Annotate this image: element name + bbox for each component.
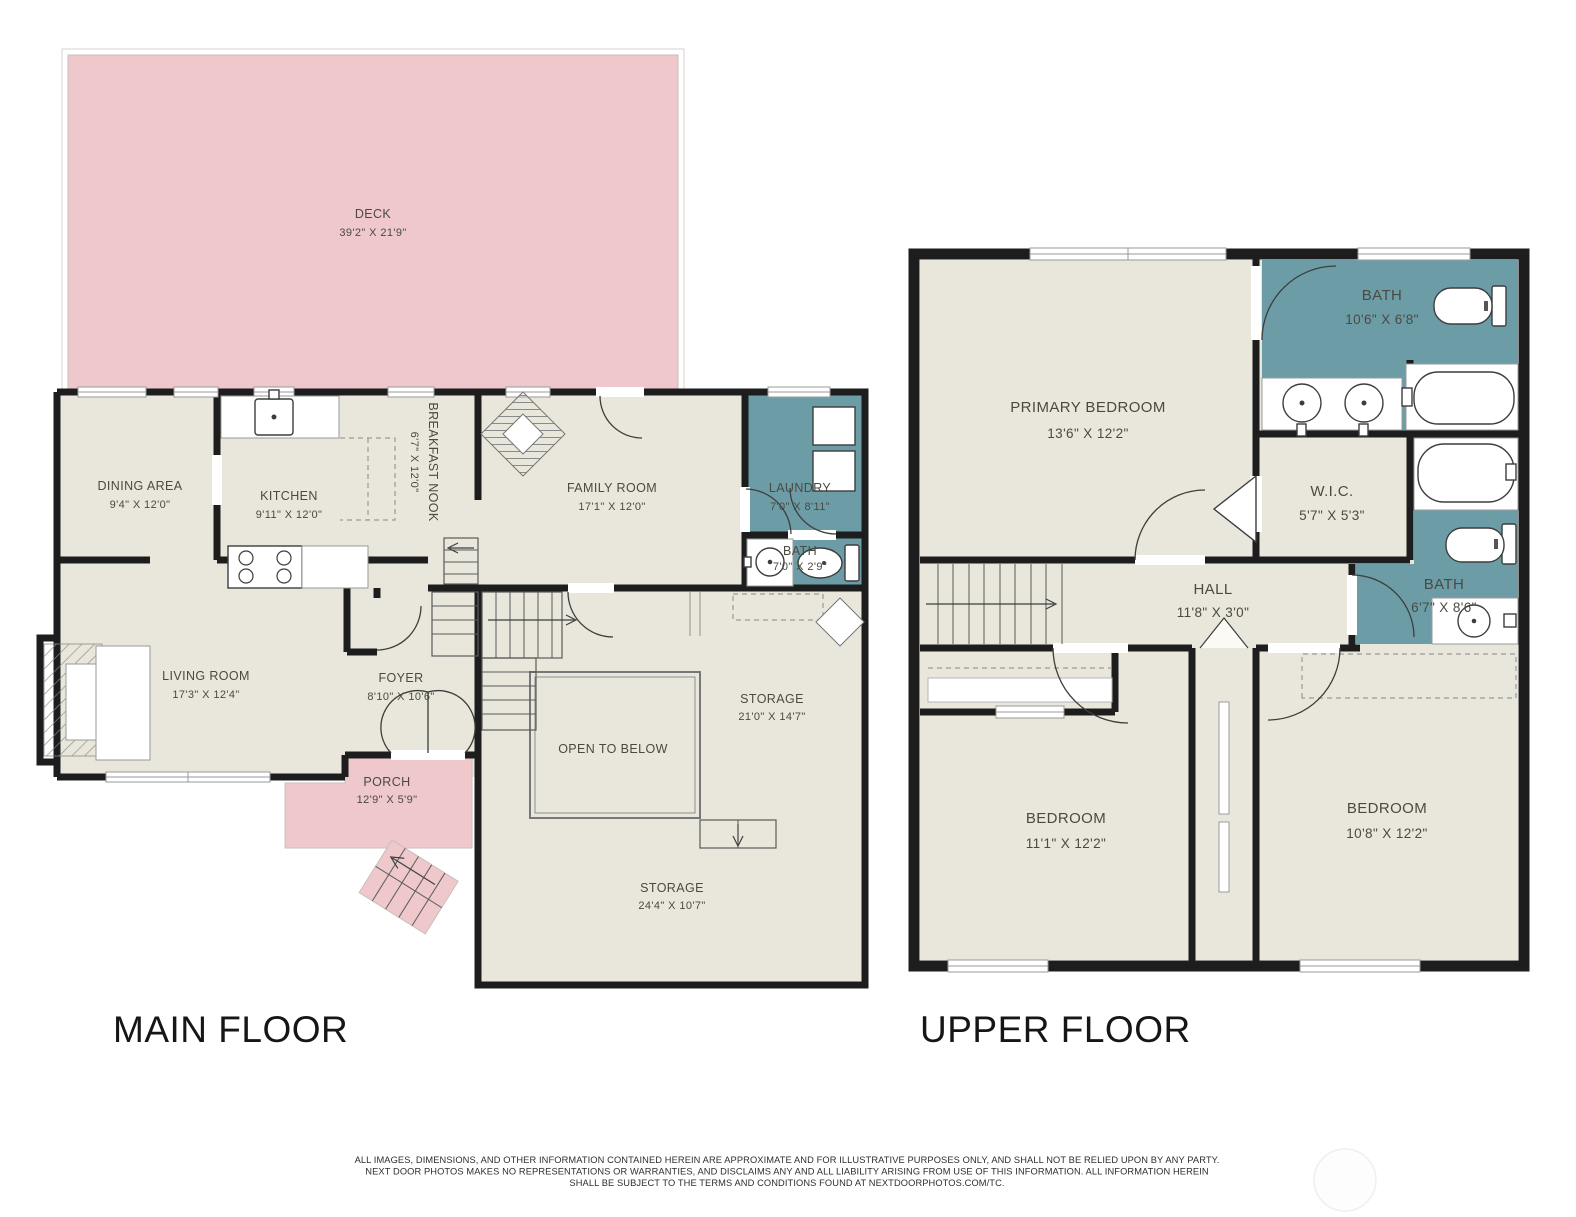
room-label-dining: DINING AREA bbox=[98, 479, 183, 493]
room-dims-deck: 39'2" X 21'9" bbox=[339, 227, 406, 239]
room-dims-wic: 5'7" X 5'3" bbox=[1299, 508, 1365, 523]
room-label-bath-right: BATH bbox=[1424, 576, 1465, 593]
chase-slot bbox=[1219, 702, 1229, 814]
floor-plan-page: DECK 39'2" X 21'9" DINING AREA 9'4" X 12… bbox=[0, 0, 1576, 1217]
cooktop-icon bbox=[228, 546, 368, 588]
chase-slot-2 bbox=[1219, 822, 1229, 892]
room-label-primary: PRIMARY BEDROOM bbox=[1010, 399, 1165, 416]
room-dims-bath-right: 6'7" X 8'6" bbox=[1411, 600, 1477, 615]
room-dims-nook: 6'7" X 12'0" bbox=[408, 432, 420, 493]
room-dims-hall: 11'8" X 3'0" bbox=[1177, 605, 1250, 620]
room-dims-storage2: 24'4" X 10'7" bbox=[638, 900, 705, 912]
room-dims-primary: 13'6" X 12'2" bbox=[1047, 426, 1129, 441]
room-dims-foyer: 8'10" X 10'6" bbox=[367, 691, 434, 703]
disclaimer-line-1: ALL IMAGES, DIMENSIONS, AND OTHER INFORM… bbox=[355, 1155, 1220, 1165]
room-label-living: LIVING ROOM bbox=[162, 669, 250, 683]
room-label-bed-left: BEDROOM bbox=[1026, 810, 1106, 827]
toilet-tank-icon bbox=[1492, 286, 1506, 326]
room-dims-laundry: 7'0" X 8'11" bbox=[770, 501, 830, 513]
toilet-icon bbox=[1434, 288, 1492, 324]
kitchen-counter2 bbox=[302, 546, 368, 588]
room-dims-storage1: 21'0" X 14'7" bbox=[738, 711, 805, 723]
room-dims-bed-right: 10'8" X 12'2" bbox=[1346, 826, 1428, 841]
bathtub-icon bbox=[1418, 444, 1514, 502]
porch-stairs-icon bbox=[359, 840, 458, 934]
washer-icon bbox=[813, 407, 855, 445]
disclaimer-line-3: SHALL BE SUBJECT TO THE TERMS AND CONDIT… bbox=[569, 1178, 1004, 1188]
room-label-storage1: STORAGE bbox=[740, 692, 804, 706]
room-dims-porch: 12'9" X 5'9" bbox=[357, 794, 418, 806]
room-label-kitchen: KITCHEN bbox=[260, 489, 318, 503]
room-dims-bath-top: 10'6" X 6'8" bbox=[1345, 312, 1419, 327]
room-label-family: FAMILY ROOM bbox=[567, 481, 657, 495]
toilet-tank-icon bbox=[845, 545, 859, 581]
room-dims-living: 17'3" X 12'4" bbox=[172, 689, 239, 701]
room-label-wic: W.I.C. bbox=[1310, 483, 1353, 500]
upper-floor-plan: PRIMARY BEDROOM 13'6" X 12'2" BATH 10'6"… bbox=[914, 248, 1524, 972]
room-dims-dining: 9'4" X 12'0" bbox=[110, 499, 171, 511]
room-label-bath-top: BATH bbox=[1362, 287, 1403, 304]
bathtub-icon bbox=[1414, 372, 1514, 424]
room-label-nook: BREAKFAST NOOK bbox=[426, 402, 440, 522]
room-label-laundry: LAUNDRY bbox=[769, 481, 832, 495]
room-dims-family: 17'1" X 12'0" bbox=[578, 501, 645, 513]
room-label-hall: HALL bbox=[1193, 581, 1232, 598]
room-dims-bath: 7'0" X 2'9" bbox=[773, 561, 827, 573]
fireplace-icon bbox=[40, 638, 150, 762]
main-floor-plan: DECK 39'2" X 21'9" DINING AREA 9'4" X 12… bbox=[40, 49, 865, 985]
floor-plan-drawing: DECK 39'2" X 21'9" DINING AREA 9'4" X 12… bbox=[0, 0, 1576, 1217]
room-label-open-to-below: OPEN TO BELOW bbox=[558, 742, 668, 756]
room-label-deck: DECK bbox=[355, 207, 392, 221]
room-dims-bed-left: 11'1" X 12'2" bbox=[1026, 836, 1107, 851]
disclaimer-line-2: NEXT DOOR PHOTOS MAKES NO REPRESENTATION… bbox=[365, 1167, 1208, 1177]
room-label-foyer: FOYER bbox=[378, 671, 423, 685]
room-label-storage2: STORAGE bbox=[640, 881, 704, 895]
room-label-porch: PORCH bbox=[363, 775, 410, 789]
room-label-bath: BATH bbox=[783, 544, 817, 558]
main-floor-title: MAIN FLOOR bbox=[113, 1009, 348, 1050]
deck-area bbox=[68, 55, 678, 392]
watermark-logo-icon bbox=[1314, 1149, 1376, 1211]
room-label-bed-right: BEDROOM bbox=[1347, 800, 1427, 817]
upper-floor-title: UPPER FLOOR bbox=[920, 1009, 1191, 1050]
room-dims-kitchen: 9'11" X 12'0" bbox=[256, 509, 323, 521]
